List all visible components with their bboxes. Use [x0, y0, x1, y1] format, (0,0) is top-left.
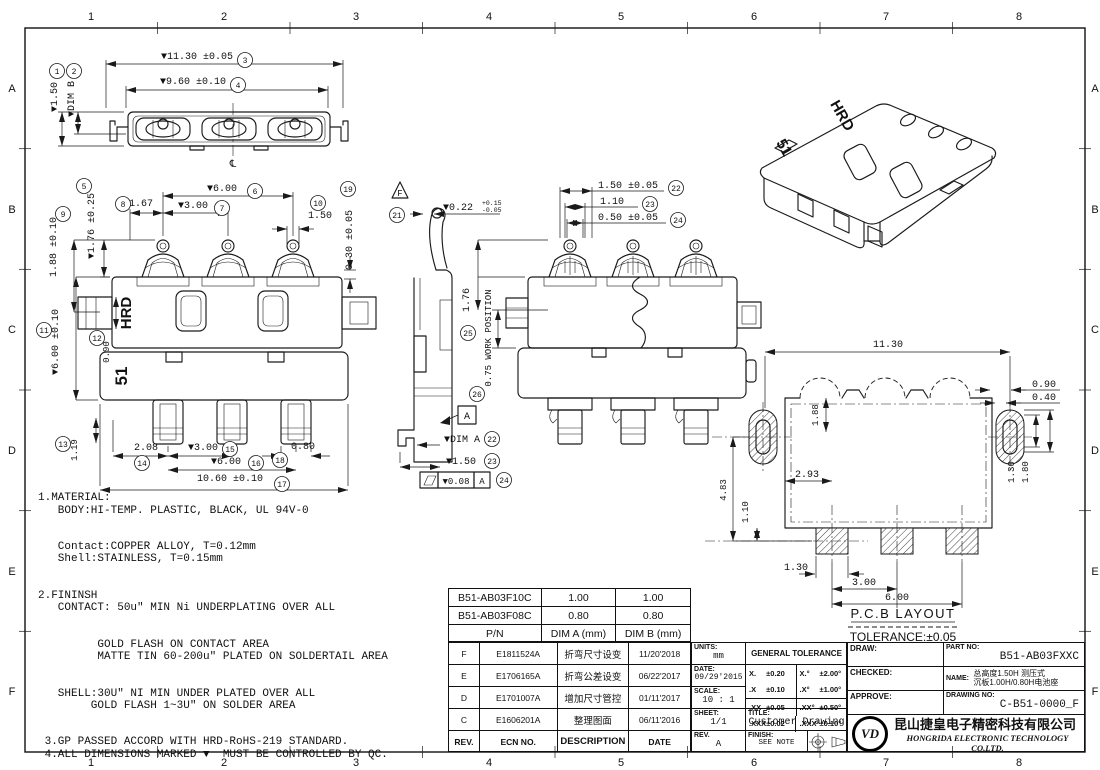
svg-text:5: 5	[82, 183, 87, 192]
svg-text:22: 22	[487, 436, 497, 445]
rev-cell: 01/11'2017	[628, 686, 690, 708]
rev-cell: E1706165A	[479, 664, 557, 686]
svg-text:7: 7	[883, 11, 889, 23]
approve-cell: APPROVE:	[847, 690, 943, 714]
svg-text:A: A	[8, 83, 16, 95]
svg-text:1.76: 1.76	[462, 288, 473, 312]
svg-text:1.50: 1.50	[308, 211, 332, 222]
product-name-line1: 总高度1.50H 测压式	[973, 669, 1045, 678]
flag-f: F	[397, 189, 402, 199]
svg-text:▼0.22: ▼0.22	[443, 203, 473, 214]
svg-text:▼3.00: ▼3.00	[178, 201, 208, 212]
svg-text:0.90: 0.90	[1032, 380, 1056, 391]
svg-text:2.08: 2.08	[134, 443, 158, 454]
note-line: GOLD FLASH ON CONTACT AREA	[38, 639, 394, 651]
svg-text:F: F	[9, 686, 16, 698]
drawing-number: C-B51-0000_F	[944, 699, 1085, 711]
svg-text:7: 7	[220, 205, 225, 214]
svg-text:8: 8	[1016, 11, 1022, 23]
svg-text:E: E	[1091, 566, 1098, 578]
dim-table-cell: B51-AB03F10C	[448, 588, 541, 606]
rev-cell: 增加尺寸管控	[557, 686, 629, 708]
draw-cell: DRAW:	[847, 642, 943, 666]
checked-cell: CHECKED:	[847, 666, 943, 690]
rev-cell: D	[448, 686, 479, 708]
rev-cell: E	[448, 664, 479, 686]
svg-text:2: 2	[221, 11, 227, 23]
svg-text:25: 25	[463, 330, 473, 339]
svg-text:11.30: 11.30	[873, 340, 903, 351]
svg-text:▼6.00: ▼6.00	[207, 184, 237, 195]
note-line: 4.ALL DIMENSIONS MARKED ▼ MUST BE CONTRO…	[38, 749, 394, 761]
svg-text:4.83: 4.83	[719, 479, 729, 501]
rev-cell: E1701007A	[479, 686, 557, 708]
note-line: Shell:STAINLESS, T=0.15mm	[38, 553, 394, 565]
marking-51: 51	[112, 367, 131, 386]
svg-text:21: 21	[392, 212, 402, 221]
view-back: 1.50 ±0.05 22 1.10 23 0.50 ±0.05 24 1.76…	[461, 181, 762, 445]
svg-text:12: 12	[92, 335, 102, 344]
svg-text:3: 3	[353, 11, 359, 23]
svg-text:0.30 ±0.05: 0.30 ±0.05	[345, 210, 356, 270]
svg-text:D: D	[1091, 445, 1099, 457]
info-block: UNITS:mm GENERAL TOLERANCE DATE:09/29'20…	[691, 642, 847, 752]
rev-cell-main: REV.A	[691, 730, 745, 752]
note-line: Contact:COPPER ALLOY, T=0.12mm	[38, 541, 394, 553]
svg-text:4: 4	[236, 82, 241, 91]
svg-text:10: 10	[313, 200, 323, 209]
date-cell: DATE:09/29'2015	[691, 664, 745, 686]
projection-cell	[807, 730, 847, 752]
dim-table-cell: B51-AB03F08C	[448, 606, 541, 624]
svg-text:26: 26	[472, 391, 482, 400]
company-logo: VD	[852, 716, 888, 752]
svg-text:1.30: 1.30	[1007, 461, 1017, 483]
svg-text:1.88: 1.88	[811, 404, 821, 426]
svg-text:▼6.00: ▼6.00	[211, 457, 241, 468]
svg-text:▼0.08: ▼0.08	[442, 477, 469, 487]
svg-text:C: C	[8, 324, 16, 336]
svg-text:▼DIM A: ▼DIM A	[444, 435, 480, 446]
frame-row-labels-left: AB CD EF	[8, 83, 16, 698]
note-line: BODY:HI-TEMP. PLASTIC, BLACK, UL 94V-0	[38, 505, 394, 517]
svg-text:1: 1	[88, 11, 94, 23]
feature-control-frame: ▼0.08 A 24	[420, 472, 512, 488]
dim-table-cell: 1.00	[541, 588, 616, 606]
company-name-en: HONGRIDA ELECTRONIC TECHNOLOGY CO,LTD.	[894, 733, 1081, 753]
company-name-cn: 昆山捷皇电子精密科技有限公司	[894, 714, 1081, 733]
svg-text:1.88 ±0.10: 1.88 ±0.10	[49, 217, 60, 277]
dim-table-cell: 0.80	[541, 606, 616, 624]
note-line: GOLD FLASH 1~3U" ON SOLDER AREA	[38, 700, 394, 712]
view-front: HRD 51	[37, 179, 377, 492]
view-pcb-layout: 11.30 0.90 0.40 1.88 2.93 4.83 1.10 1.30…	[705, 340, 1060, 644]
svg-text:23: 23	[487, 458, 497, 467]
svg-text:C: C	[1091, 324, 1099, 336]
pcb-layout-title: P.C.B LAYOUT	[851, 606, 956, 621]
svg-text:▼3.00: ▼3.00	[188, 443, 218, 454]
dim-1.50-v: ▼1.50	[50, 82, 61, 112]
svg-text:1.67: 1.67	[129, 199, 153, 210]
dim-11.30: ▼11.30 ±0.05	[161, 52, 233, 63]
rev-header: ECN NO.	[479, 730, 557, 752]
dim-table-cell: 1.00	[615, 588, 690, 606]
rev-cell: C	[448, 708, 479, 730]
svg-text:B: B	[8, 204, 15, 216]
svg-text:4: 4	[486, 757, 492, 769]
svg-text:6: 6	[751, 11, 757, 23]
rev-cell: F	[448, 642, 479, 664]
general-tolerance-grid: X. ±0.20 X.° ±2.00° .X ±0.10 .X° ±1.00° …	[745, 664, 847, 708]
rev-header: DESCRIPTION	[557, 730, 629, 752]
revision-table: F E1811524A 折弯尺寸设变 11/20'2018 E E1706165…	[448, 642, 691, 752]
rev-cell: E1606201A	[479, 708, 557, 730]
svg-text:F: F	[1092, 686, 1099, 698]
svg-text:15: 15	[225, 446, 235, 455]
svg-text:1.10: 1.10	[600, 197, 624, 208]
dim-table-header: DIM A (mm)	[541, 624, 616, 642]
svg-text:B: B	[1091, 204, 1098, 216]
view-top-dim-lines	[58, 60, 343, 146]
dim-table: B51-AB03F10C 1.00 1.00 B51-AB03F08C 0.80…	[448, 588, 691, 642]
dim-table-cell: 0.80	[615, 606, 690, 624]
datum-a-box: A	[464, 412, 470, 423]
svg-text:5: 5	[618, 11, 624, 23]
name-cell: NAME: 总高度1.50H 测压式 沉板1.00H/0.80H电池座	[943, 666, 1085, 690]
svg-text:5: 5	[618, 757, 624, 769]
svg-text:1.50 ±0.05: 1.50 ±0.05	[598, 181, 658, 192]
svg-text:6: 6	[751, 757, 757, 769]
dim-9.60: ▼9.60 ±0.10	[160, 77, 226, 88]
iso-marking-51: 51	[772, 136, 795, 159]
svg-text:-0.05: -0.05	[482, 207, 502, 214]
svg-text:0.40: 0.40	[1032, 393, 1056, 404]
scale-cell: SCALE:10 : 1	[691, 686, 745, 708]
rev-header: REV.	[448, 730, 479, 752]
svg-text:A: A	[1091, 83, 1099, 95]
svg-text:9: 9	[61, 211, 66, 220]
note-line: 2.FININSH	[38, 590, 394, 602]
svg-text:A: A	[479, 477, 485, 487]
projection-symbol	[809, 733, 847, 751]
svg-text:2: 2	[72, 68, 77, 77]
iso-marking-hrd: HRD	[826, 97, 857, 134]
svg-text:0.50 ±0.05: 0.50 ±0.05	[598, 213, 658, 224]
svg-text:+0.15: +0.15	[482, 200, 502, 207]
rev-header: DATE	[628, 730, 690, 752]
sheet-cell: SHEET:1/1	[691, 708, 745, 730]
svg-text:0.75 WORK POSITION: 0.75 WORK POSITION	[484, 289, 494, 386]
company-row: VD 昆山捷皇电子精密科技有限公司 HONGRIDA ELECTRONIC TE…	[847, 714, 1085, 752]
svg-text:19: 19	[343, 186, 353, 195]
svg-text:1.10: 1.10	[741, 501, 751, 523]
rev-cell: 折弯尺寸设变	[557, 642, 629, 664]
svg-text:0.80: 0.80	[291, 442, 315, 453]
rev-cell: 11/20'2018	[628, 642, 690, 664]
svg-text:1.80: 1.80	[1021, 461, 1031, 483]
rev-cell: 06/11'2016	[628, 708, 690, 730]
note-line: CONTACT: 50u" MIN Ni UNDERPLATING OVER A…	[38, 602, 394, 614]
svg-text:4: 4	[486, 11, 492, 23]
part-number: B51-AB03FXXC	[944, 651, 1085, 663]
title-cell: TITLE: Customer Drawing	[745, 708, 847, 730]
svg-text:D: D	[8, 445, 16, 457]
svg-text:24: 24	[673, 217, 683, 226]
svg-text:3: 3	[243, 57, 248, 66]
rev-cell: E1811524A	[479, 642, 557, 664]
rev-cell: 整理图面	[557, 708, 629, 730]
centerline-symbol: ℄	[229, 160, 237, 171]
title-block: DRAW: PART NO: B51-AB03FXXC CHECKED: NAM…	[847, 642, 1085, 752]
svg-text:1: 1	[55, 68, 60, 77]
view-top: ℄ ▼11.30 ±0.05 ▼9.60 ±0.10 ▼1.50 ▼DIM B …	[50, 52, 349, 171]
svg-text:11: 11	[39, 327, 49, 336]
units-cell: UNITS:mm	[691, 642, 745, 664]
note-line: SHELL:30U" NI MIN UNDER PLATED OVER ALL	[38, 688, 394, 700]
dim-table-header: P/N	[448, 624, 541, 642]
view-isometric: HRD 51	[760, 97, 995, 247]
svg-text:6: 6	[253, 188, 258, 197]
svg-text:1.19: 1.19	[70, 439, 80, 461]
svg-text:2.93: 2.93	[795, 470, 819, 481]
svg-text:1.30: 1.30	[784, 563, 808, 574]
general-tolerance-header: GENERAL TOLERANCE	[745, 642, 847, 664]
dim-dimb: ▼DIM B	[67, 81, 78, 117]
product-name-line2: 沉板1.00H/0.80H电池座	[973, 678, 1058, 687]
marking-hrd: HRD	[118, 297, 135, 330]
finish-cell: FINISH:SEE NOTE	[745, 730, 807, 752]
rev-cell: 折弯公差设变	[557, 664, 629, 686]
svg-text:0.90: 0.90	[102, 341, 112, 363]
svg-text:13: 13	[58, 441, 68, 450]
dim-table-header: DIM B (mm)	[615, 624, 690, 642]
svg-text:▼1.76 ±0.25: ▼1.76 ±0.25	[87, 193, 98, 259]
svg-text:18: 18	[275, 457, 285, 466]
drawing-sheet: 12 34 56 78 12 34 56 78 AB CD EF AB CD E…	[0, 0, 1100, 770]
svg-text:8: 8	[1016, 757, 1022, 769]
note-line: 3.GP PASSED ACCORD WITH HRD-RoHS-219 STA…	[38, 736, 394, 748]
note-line: MATTE TIN 60-200u" PLATED ON SOLDERTAIL …	[38, 651, 394, 663]
svg-text:6.00: 6.00	[885, 593, 909, 604]
note-line: 1.MATERIAL:	[38, 492, 394, 504]
notes-block: 1.MATERIAL: BODY:HI-TEMP. PLASTIC, BLACK…	[38, 468, 394, 770]
drawing-no-cell: DRAWING NO: C-B51-0000_F	[943, 690, 1085, 714]
svg-text:24: 24	[499, 477, 509, 486]
part-no-cell: PART NO: B51-AB03FXXC	[943, 642, 1085, 666]
svg-text:3.00: 3.00	[852, 578, 876, 589]
svg-text:▼1.50: ▼1.50	[446, 457, 476, 468]
svg-text:7: 7	[883, 757, 889, 769]
svg-text:▼6.00 ±0.10: ▼6.00 ±0.10	[51, 309, 62, 375]
frame-row-labels-right: AB CD EF	[1091, 83, 1099, 698]
svg-text:E: E	[8, 566, 15, 578]
drawing-title: Customer Drawing	[746, 717, 847, 728]
svg-text:23: 23	[645, 201, 655, 210]
rev-cell: 06/22'2017	[628, 664, 690, 686]
svg-text:22: 22	[671, 185, 681, 194]
frame-column-labels-top: 12 34 56 78	[88, 11, 1022, 23]
svg-text:8: 8	[121, 201, 126, 210]
